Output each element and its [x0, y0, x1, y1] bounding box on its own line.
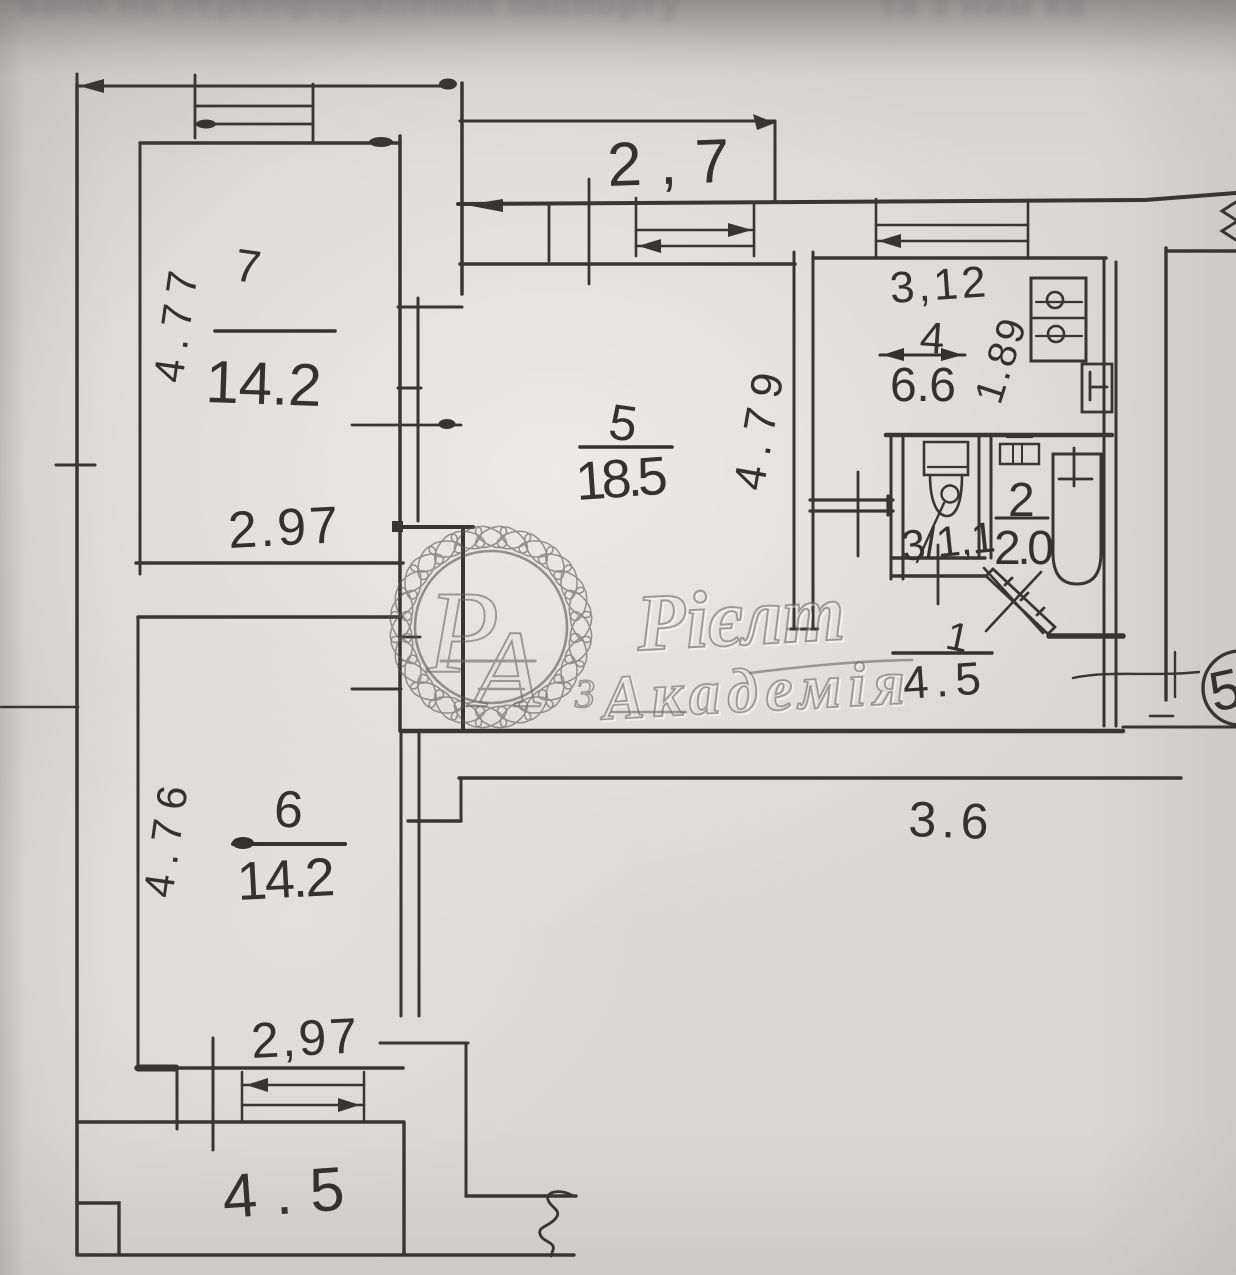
svg-text:4.5: 4.5	[901, 652, 982, 709]
svg-text:5: 5	[605, 393, 640, 452]
svg-text:6.6: 6.6	[890, 359, 956, 412]
svg-text:2,97: 2,97	[250, 1008, 359, 1069]
svg-text:18.5: 18.5	[574, 446, 670, 512]
svg-text:1.89: 1.89	[967, 313, 1035, 408]
svg-text:4.77: 4.77	[144, 268, 206, 385]
svg-text:14.2: 14.2	[205, 348, 323, 419]
svg-text:2,7: 2,7	[606, 127, 730, 200]
svg-text:3,12: 3,12	[888, 257, 987, 313]
svg-text:5: 5	[1203, 656, 1236, 724]
svg-text:3: 3	[574, 671, 595, 716]
svg-text:14.2: 14.2	[235, 847, 336, 912]
svg-text:7: 7	[232, 238, 265, 293]
svg-text:2.0: 2.0	[994, 522, 1054, 575]
svg-text:4.76: 4.76	[134, 783, 196, 900]
svg-text:2.97: 2.97	[227, 496, 340, 560]
svg-text:4.5: 4.5	[220, 1155, 347, 1232]
svg-text:6: 6	[272, 780, 305, 840]
svg-text:3.6: 3.6	[908, 791, 990, 850]
svg-text:3/1,1: 3/1,1	[899, 513, 998, 571]
svg-text:А: А	[466, 608, 541, 730]
svg-text:4.79: 4.79	[725, 369, 794, 494]
